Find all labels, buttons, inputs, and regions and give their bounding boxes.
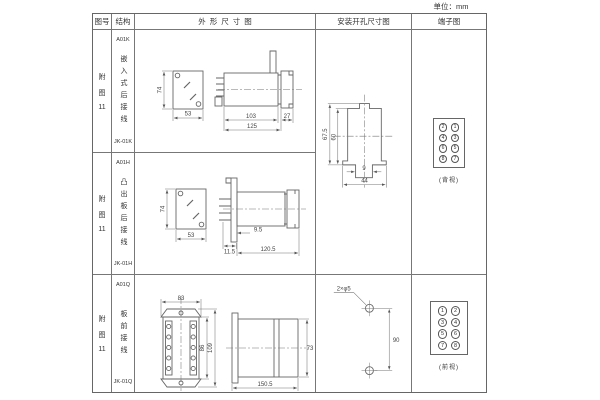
header-install: 安装开孔尺寸图 xyxy=(316,14,412,30)
install-cutout-drawing: 67.5 60 9 44 xyxy=(316,30,411,275)
dimension-lines xyxy=(328,103,386,187)
structure-desc: 板前接线 xyxy=(118,310,128,358)
structure-code: A01Q xyxy=(116,282,130,288)
dimension-lines xyxy=(334,292,392,370)
terminal-pin: 5 xyxy=(438,329,448,339)
terminal-pin: 7 xyxy=(451,155,460,164)
outline-drawing-a01q: 83 86 109 73 150.5 xyxy=(136,275,315,392)
side-view xyxy=(215,51,293,108)
model-number: JK-01Q xyxy=(114,379,133,385)
header-outline: 外形尺寸图 xyxy=(135,14,316,30)
view-caption: (前视) xyxy=(439,362,459,371)
fig-no-a01k: 附 图 11 xyxy=(93,30,112,153)
fig-no-a01h: 附 图 11 xyxy=(93,153,112,275)
terminal-block-front: 1 2 3 4 5 6 7 8 xyxy=(430,301,468,355)
dim-label: 53 xyxy=(184,111,191,117)
header-structure: 结构 xyxy=(112,14,135,30)
terminal-pin: 8 xyxy=(451,341,461,351)
dim-label: 103 xyxy=(245,114,256,120)
dim-label: 27 xyxy=(283,114,290,120)
outline-drawing-a01k: 74 53 103 27 125 xyxy=(136,31,315,152)
outline-cell-a01q: 83 86 109 73 150.5 xyxy=(135,275,316,392)
dim-label: 150.5 xyxy=(257,382,273,388)
model-number: JK-01H xyxy=(114,261,132,267)
terminal-pin: 3 xyxy=(451,134,460,143)
front-view xyxy=(173,71,203,109)
dimension-lines xyxy=(162,71,293,131)
dim-label: 120.5 xyxy=(260,247,276,253)
hole-centerlines xyxy=(362,300,378,378)
terminal-pin: 4 xyxy=(439,134,448,143)
terminal-pin: 5 xyxy=(451,144,460,153)
terminal-pin: 8 xyxy=(439,155,448,164)
dim-label: 83 xyxy=(177,296,184,302)
install-holes-drawing: 2×φ5 90 xyxy=(316,275,411,392)
terminal-pin: 1 xyxy=(438,306,448,316)
terminal-pin: 6 xyxy=(451,329,461,339)
dim-label: 74 xyxy=(157,86,163,93)
model-number: JK-01K xyxy=(114,139,132,145)
view-caption: (背视) xyxy=(439,175,459,184)
terminal-pin: 1 xyxy=(451,123,460,132)
terminal-pin: 7 xyxy=(438,341,448,351)
page: 单位：mm 图号 结构 外形尺寸图 安装开孔尺寸图 端子图 附 图 11 A01… xyxy=(0,0,600,400)
front-view xyxy=(176,189,206,229)
terminal-pin: 4 xyxy=(451,318,461,328)
dim-label: 73 xyxy=(306,346,313,352)
structure-desc: 嵌入式后接线 xyxy=(118,55,128,127)
fig-no-a01q: 附 图 11 xyxy=(93,275,112,392)
install-cutout-cell: 67.5 60 9 44 xyxy=(316,30,412,275)
terminal-pin: 3 xyxy=(438,318,448,328)
structure-a01h: A01H 凸出板后接线 JK-01H xyxy=(112,153,135,275)
dim-label: 74 xyxy=(160,205,166,212)
dim-label: 109 xyxy=(208,342,214,353)
dim-label: 125 xyxy=(246,124,257,130)
structure-code: A01K xyxy=(116,37,129,43)
dim-label: 44 xyxy=(361,178,368,184)
outline-drawing-a01h: 74 53 11.5 9.5 120.5 xyxy=(136,154,315,274)
structure-a01k: A01K 嵌入式后接线 JK-01K xyxy=(112,30,135,153)
structure-a01q: A01Q 板前接线 JK-01Q xyxy=(112,275,135,392)
header-terminal: 端子图 xyxy=(412,14,486,30)
unit-label: 单位：mm xyxy=(415,1,487,12)
terminal-pin: 6 xyxy=(439,144,448,153)
install-holes-cell: 2×φ5 90 xyxy=(316,275,412,392)
header-fig-no: 图号 xyxy=(93,14,112,30)
terminal-pin: 2 xyxy=(451,306,461,316)
dim-label: 11.5 xyxy=(223,249,235,255)
terminal-cell-rear: 2 1 4 3 6 5 8 7 (背视) xyxy=(412,30,486,275)
dim-label: 60 xyxy=(331,133,337,140)
dim-label: 86 xyxy=(200,344,206,351)
dimension-lines xyxy=(165,189,299,256)
dim-label: 53 xyxy=(187,233,194,239)
dim-label: 90 xyxy=(393,338,400,344)
structure-code: A01H xyxy=(116,160,130,166)
outline-cell-a01h: 74 53 11.5 9.5 120.5 xyxy=(135,153,316,275)
terminal-pin: 2 xyxy=(439,123,448,132)
terminal-cell-front: 1 2 3 4 5 6 7 8 (前视) xyxy=(412,275,486,392)
terminal-block-rear: 2 1 4 3 6 5 8 7 xyxy=(433,118,465,168)
outline-cell-a01k: 74 53 103 27 125 xyxy=(135,30,316,153)
dimension-table: 图号 结构 外形尺寸图 安装开孔尺寸图 端子图 附 图 11 A01K 嵌入式后… xyxy=(92,13,487,393)
dim-label: 67.5 xyxy=(323,127,329,139)
dim-label: 9.5 xyxy=(253,227,262,233)
structure-desc: 凸出板后接线 xyxy=(118,178,128,250)
dim-label: 9 xyxy=(362,165,366,171)
hole-spec-label: 2×φ5 xyxy=(337,286,352,292)
